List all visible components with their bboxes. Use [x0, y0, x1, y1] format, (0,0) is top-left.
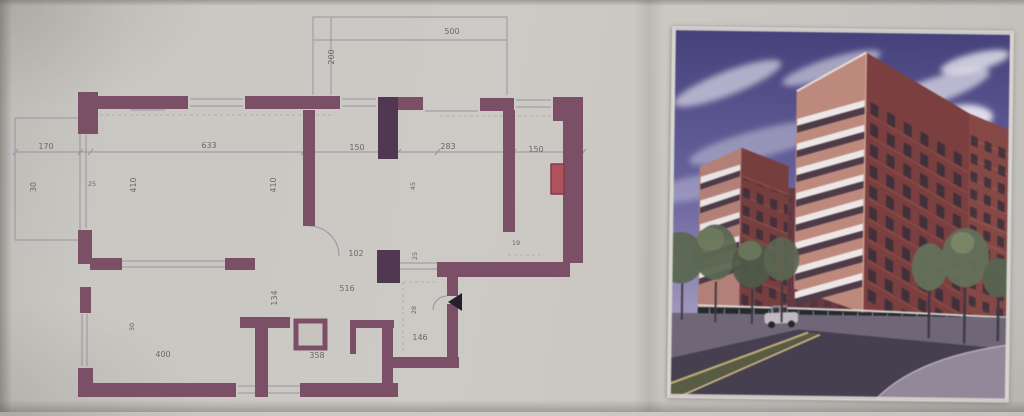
dim-label: 200: [327, 49, 336, 64]
dim-label: 516: [339, 284, 354, 293]
dim-label: 150: [349, 143, 364, 152]
dim-label: 283: [440, 142, 455, 151]
window-bottom: [238, 386, 300, 393]
dim-label: 45: [409, 182, 417, 190]
dim-label: 146: [412, 333, 427, 342]
shaft-column-mid: [377, 250, 400, 283]
right-extension: [966, 113, 1011, 333]
street: [669, 313, 1008, 401]
window-top-3: [516, 100, 551, 107]
dim-label: 500: [444, 27, 459, 36]
scan-edge-top: [0, 0, 1024, 6]
dim-label: 30: [29, 182, 38, 192]
dim-label: 102: [348, 249, 363, 258]
window-left-2: [82, 314, 87, 366]
dim-label: 28: [410, 306, 418, 314]
dim-label: 410: [129, 177, 138, 192]
balcony-door-red: [551, 164, 564, 194]
scan-edge-bottom: [0, 400, 1024, 412]
dim-label: 30: [128, 323, 136, 331]
floor-plan-drawing: 500 200 170 633 150 283 150 30 25 410 41…: [0, 0, 660, 412]
window-top-2: [342, 99, 376, 106]
scan-edge-left: [0, 0, 12, 412]
dim-label: 25: [88, 180, 96, 188]
plan-walls: [78, 92, 583, 397]
plan-dimension-labels: 500 200 170 633 150 283 150 30 25 410 41…: [29, 27, 544, 360]
door-arc-1: [309, 226, 339, 256]
dim-label: 633: [201, 141, 216, 150]
window-top-1: [190, 99, 243, 106]
floor-plan: 500 200 170 633 150 283 150 30 25 410 41…: [0, 0, 660, 412]
window-left-1: [80, 135, 86, 228]
terrace-outline: [313, 17, 507, 95]
dim-label: 19: [512, 239, 520, 247]
dim-label: 25: [411, 252, 419, 260]
balcony-outline: [15, 118, 80, 240]
dim-label: 134: [270, 290, 279, 305]
dim-label: 410: [269, 177, 278, 192]
wide-opening: [122, 261, 225, 267]
dim-label: 358: [309, 351, 324, 360]
shaft-columns: [377, 97, 400, 283]
render-scene: [669, 28, 1012, 401]
dim-label: 170: [38, 142, 53, 151]
page-fold-shadow: [634, 0, 664, 412]
opening-hall: [400, 263, 437, 269]
door-arc-entry: [433, 296, 447, 310]
dim-label: 400: [155, 350, 170, 359]
building-render-photo: [667, 26, 1014, 403]
dim-label: 150: [528, 145, 543, 154]
kitchen-fixture: [296, 321, 325, 348]
shaft-column-top: [378, 97, 398, 159]
